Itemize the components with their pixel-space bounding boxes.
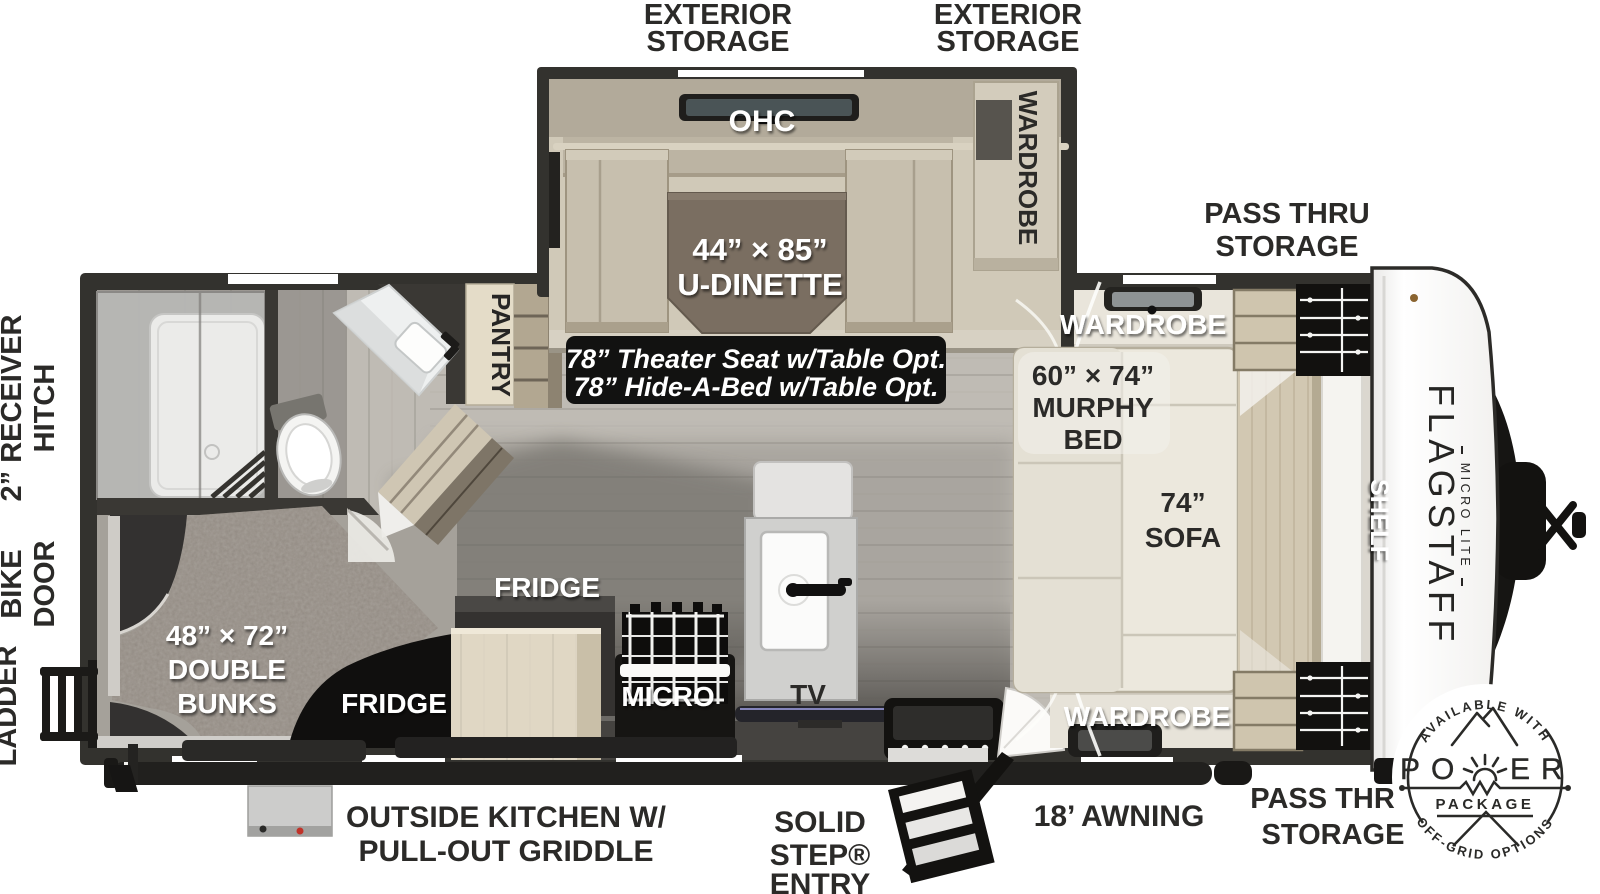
svg-text:LADDER: LADDER	[0, 646, 23, 767]
svg-text:ENTRY: ENTRY	[770, 868, 871, 894]
svg-text:BUNKS: BUNKS	[177, 688, 277, 719]
svg-text:44” × 85”: 44” × 85”	[692, 232, 827, 267]
svg-text:HITCH: HITCH	[29, 364, 61, 453]
svg-text:OUTSIDE KITCHEN W/: OUTSIDE KITCHEN W/	[346, 801, 667, 834]
svg-text:O: O	[1431, 753, 1454, 786]
svg-text:BED: BED	[1063, 424, 1122, 455]
svg-text:78” Hide-A-Bed w/Table Opt.: 78” Hide-A-Bed w/Table Opt.	[573, 372, 938, 402]
svg-text:SOFA: SOFA	[1145, 522, 1221, 553]
svg-text:18’ AWNING: 18’ AWNING	[1034, 800, 1205, 833]
svg-text:E: E	[1510, 753, 1530, 786]
svg-text:PACKAGE: PACKAGE	[1435, 796, 1534, 813]
svg-text:TV: TV	[790, 679, 826, 710]
svg-text:DOUBLE: DOUBLE	[168, 654, 286, 685]
svg-text:WARDROBE: WARDROBE	[1013, 91, 1043, 246]
svg-text:SOLID: SOLID	[774, 806, 866, 839]
svg-text:48” × 72”: 48” × 72”	[166, 620, 288, 651]
svg-text:OHC: OHC	[729, 105, 796, 138]
svg-text:2” RECEIVER: 2” RECEIVER	[0, 314, 28, 501]
svg-text:FRIDGE: FRIDGE	[494, 572, 600, 603]
svg-text:STORAGE: STORAGE	[1216, 231, 1359, 263]
svg-text:78” Theater Seat w/Table Opt.: 78” Theater Seat w/Table Opt.	[566, 344, 946, 374]
svg-text:FLAGSTAFF: FLAGSTAFF	[1421, 384, 1462, 648]
svg-text:PASS THRU: PASS THRU	[1204, 198, 1369, 230]
svg-text:STORAGE: STORAGE	[647, 26, 790, 58]
svg-text:DOOR: DOOR	[29, 540, 61, 627]
svg-text:R: R	[1541, 753, 1563, 786]
svg-text:MURPHY: MURPHY	[1032, 392, 1154, 423]
svg-text:74”: 74”	[1160, 487, 1205, 518]
svg-text:PULL-OUT GRIDDLE: PULL-OUT GRIDDLE	[359, 835, 654, 868]
svg-text:STORAGE: STORAGE	[937, 26, 1080, 58]
svg-text:PASS THRU: PASS THRU	[1250, 783, 1415, 815]
svg-text:SHELF: SHELF	[1365, 479, 1393, 561]
svg-text:P: P	[1400, 753, 1420, 786]
svg-text:FRIDGE: FRIDGE	[341, 688, 447, 719]
svg-text:WARDROBE: WARDROBE	[1060, 309, 1226, 340]
svg-text:MICRO: MICRO	[621, 681, 714, 712]
svg-text:BIKE: BIKE	[0, 549, 28, 618]
svg-text:STORAGE: STORAGE	[1262, 819, 1405, 851]
svg-text:60” × 74”: 60” × 74”	[1032, 360, 1154, 391]
svg-text:U-DINETTE: U-DINETTE	[677, 267, 842, 302]
svg-text:MICRO LITE: MICRO LITE	[1458, 463, 1472, 570]
svg-text:PANTRY: PANTRY	[486, 293, 516, 397]
svg-text:WARDROBE: WARDROBE	[1064, 701, 1230, 732]
